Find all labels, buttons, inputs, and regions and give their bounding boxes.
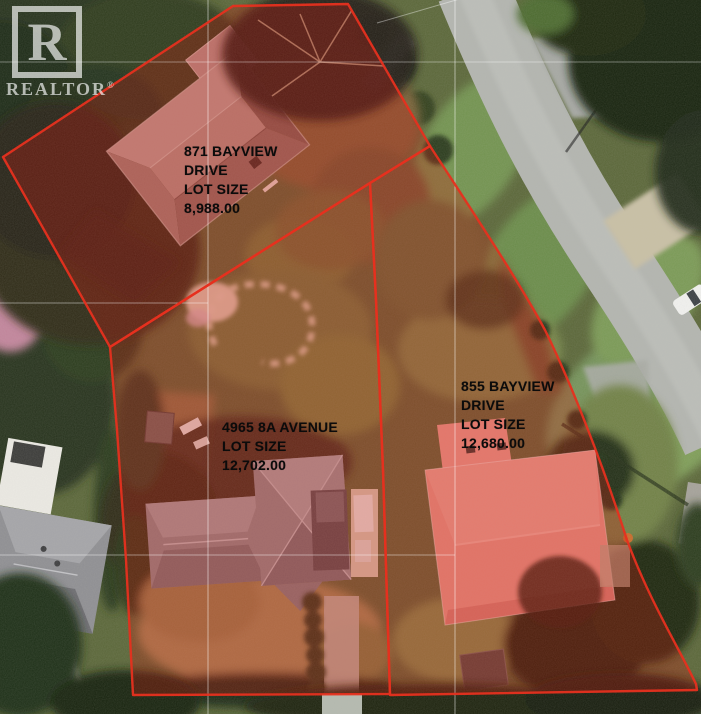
label-4965-8a-avenue: 4965 8A AVENUE LOT SIZE 12,702.00: [222, 418, 338, 475]
label-line: 855 BAYVIEW: [461, 377, 555, 396]
label-line: 12,702.00: [222, 456, 338, 475]
label-line: 871 BAYVIEW: [184, 142, 278, 161]
label-line: DRIVE: [461, 396, 555, 415]
realtor-watermark: R REALTOR®: [6, 6, 114, 100]
label-line: 4965 8A AVENUE: [222, 418, 338, 437]
realtor-wordmark: REALTOR®: [6, 79, 114, 100]
label-line: 8,988.00: [184, 199, 278, 218]
realtor-wordmark-text: REALTOR: [6, 79, 107, 99]
label-line: LOT SIZE: [461, 415, 555, 434]
label-line: 12,680.00: [461, 434, 555, 453]
label-line: DRIVE: [184, 161, 278, 180]
label-line: LOT SIZE: [184, 180, 278, 199]
label-line: LOT SIZE: [222, 437, 338, 456]
label-871-bayview: 871 BAYVIEW DRIVE LOT SIZE 8,988.00: [184, 142, 278, 218]
label-855-bayview: 855 BAYVIEW DRIVE LOT SIZE 12,680.00: [461, 377, 555, 453]
aerial-lot-map: 871 BAYVIEW DRIVE LOT SIZE 8,988.00 4965…: [0, 0, 701, 714]
registered-trademark-symbol: ®: [107, 80, 114, 90]
aerial-photo: [0, 0, 701, 714]
realtor-logo-icon: R: [12, 6, 82, 78]
realtor-logo-letter: R: [28, 15, 67, 69]
